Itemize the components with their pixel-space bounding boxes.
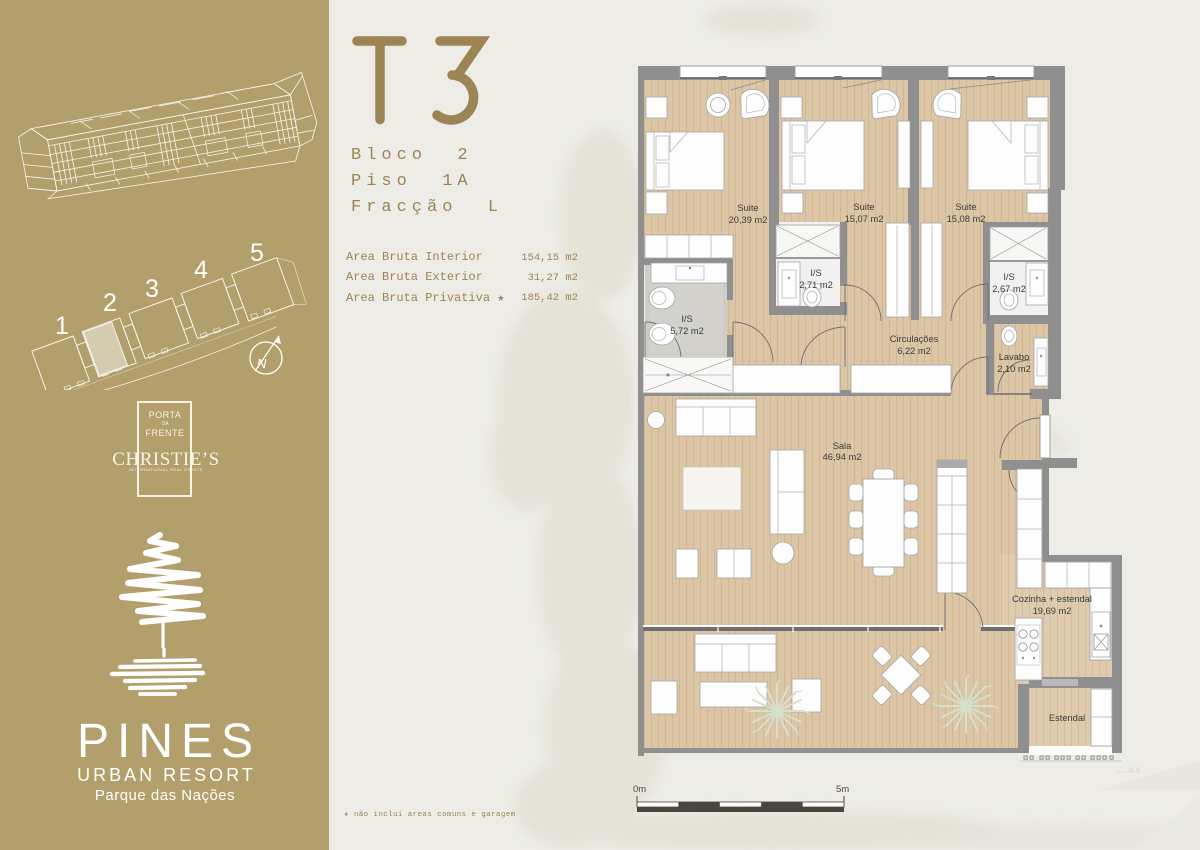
svg-text:5: 5 xyxy=(250,239,264,267)
svg-text:2: 2 xyxy=(103,289,117,317)
svg-text:Lavabo: Lavabo xyxy=(999,352,1030,362)
svg-text:19,69 m2: 19,69 m2 xyxy=(1033,606,1072,616)
svg-text:15,08 m2: 15,08 m2 xyxy=(947,214,986,224)
svg-text:I/S: I/S xyxy=(1003,272,1014,282)
svg-text:N: N xyxy=(257,356,267,371)
svg-text:1: 1 xyxy=(55,312,69,340)
svg-text:Suite: Suite xyxy=(955,202,976,212)
svg-text:46,94 m2: 46,94 m2 xyxy=(823,452,862,462)
svg-text:2,71 m2: 2,71 m2 xyxy=(799,280,833,290)
svg-text:I/S: I/S xyxy=(810,268,821,278)
svg-text:3: 3 xyxy=(145,275,159,303)
svg-text:20,39 m2: 20,39 m2 xyxy=(729,215,768,225)
svg-text:Circulações: Circulações xyxy=(890,334,939,344)
svg-text:Suite: Suite xyxy=(853,202,874,212)
svg-text:I/S: I/S xyxy=(681,314,692,324)
svg-text:5,72 m2: 5,72 m2 xyxy=(670,326,704,336)
svg-text:Sala: Sala xyxy=(833,441,852,451)
svg-text:6,22 m2: 6,22 m2 xyxy=(897,346,931,356)
svg-text:2,67 m2: 2,67 m2 xyxy=(992,284,1026,294)
svg-text:4: 4 xyxy=(194,256,208,284)
svg-text:Estendal: Estendal xyxy=(1049,713,1085,723)
svg-text:2,10 m2: 2,10 m2 xyxy=(997,364,1031,374)
svg-text:Cozinha + estendal: Cozinha + estendal xyxy=(1012,594,1092,604)
svg-text:15,07 m2: 15,07 m2 xyxy=(845,214,884,224)
svg-text:Suite: Suite xyxy=(737,203,758,213)
